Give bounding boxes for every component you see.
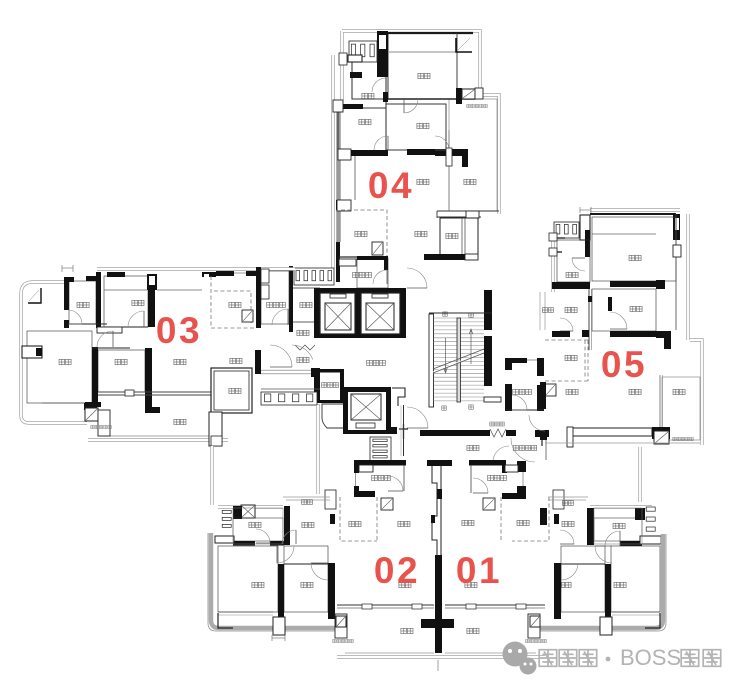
svg-text:04: 04 [368,165,414,206]
svg-text:03: 03 [156,310,202,351]
svg-text:01: 01 [456,550,502,591]
svg-text:02: 02 [374,550,420,591]
svg-text:05: 05 [601,344,647,385]
svg-text:BOSS: BOSS [620,645,681,670]
